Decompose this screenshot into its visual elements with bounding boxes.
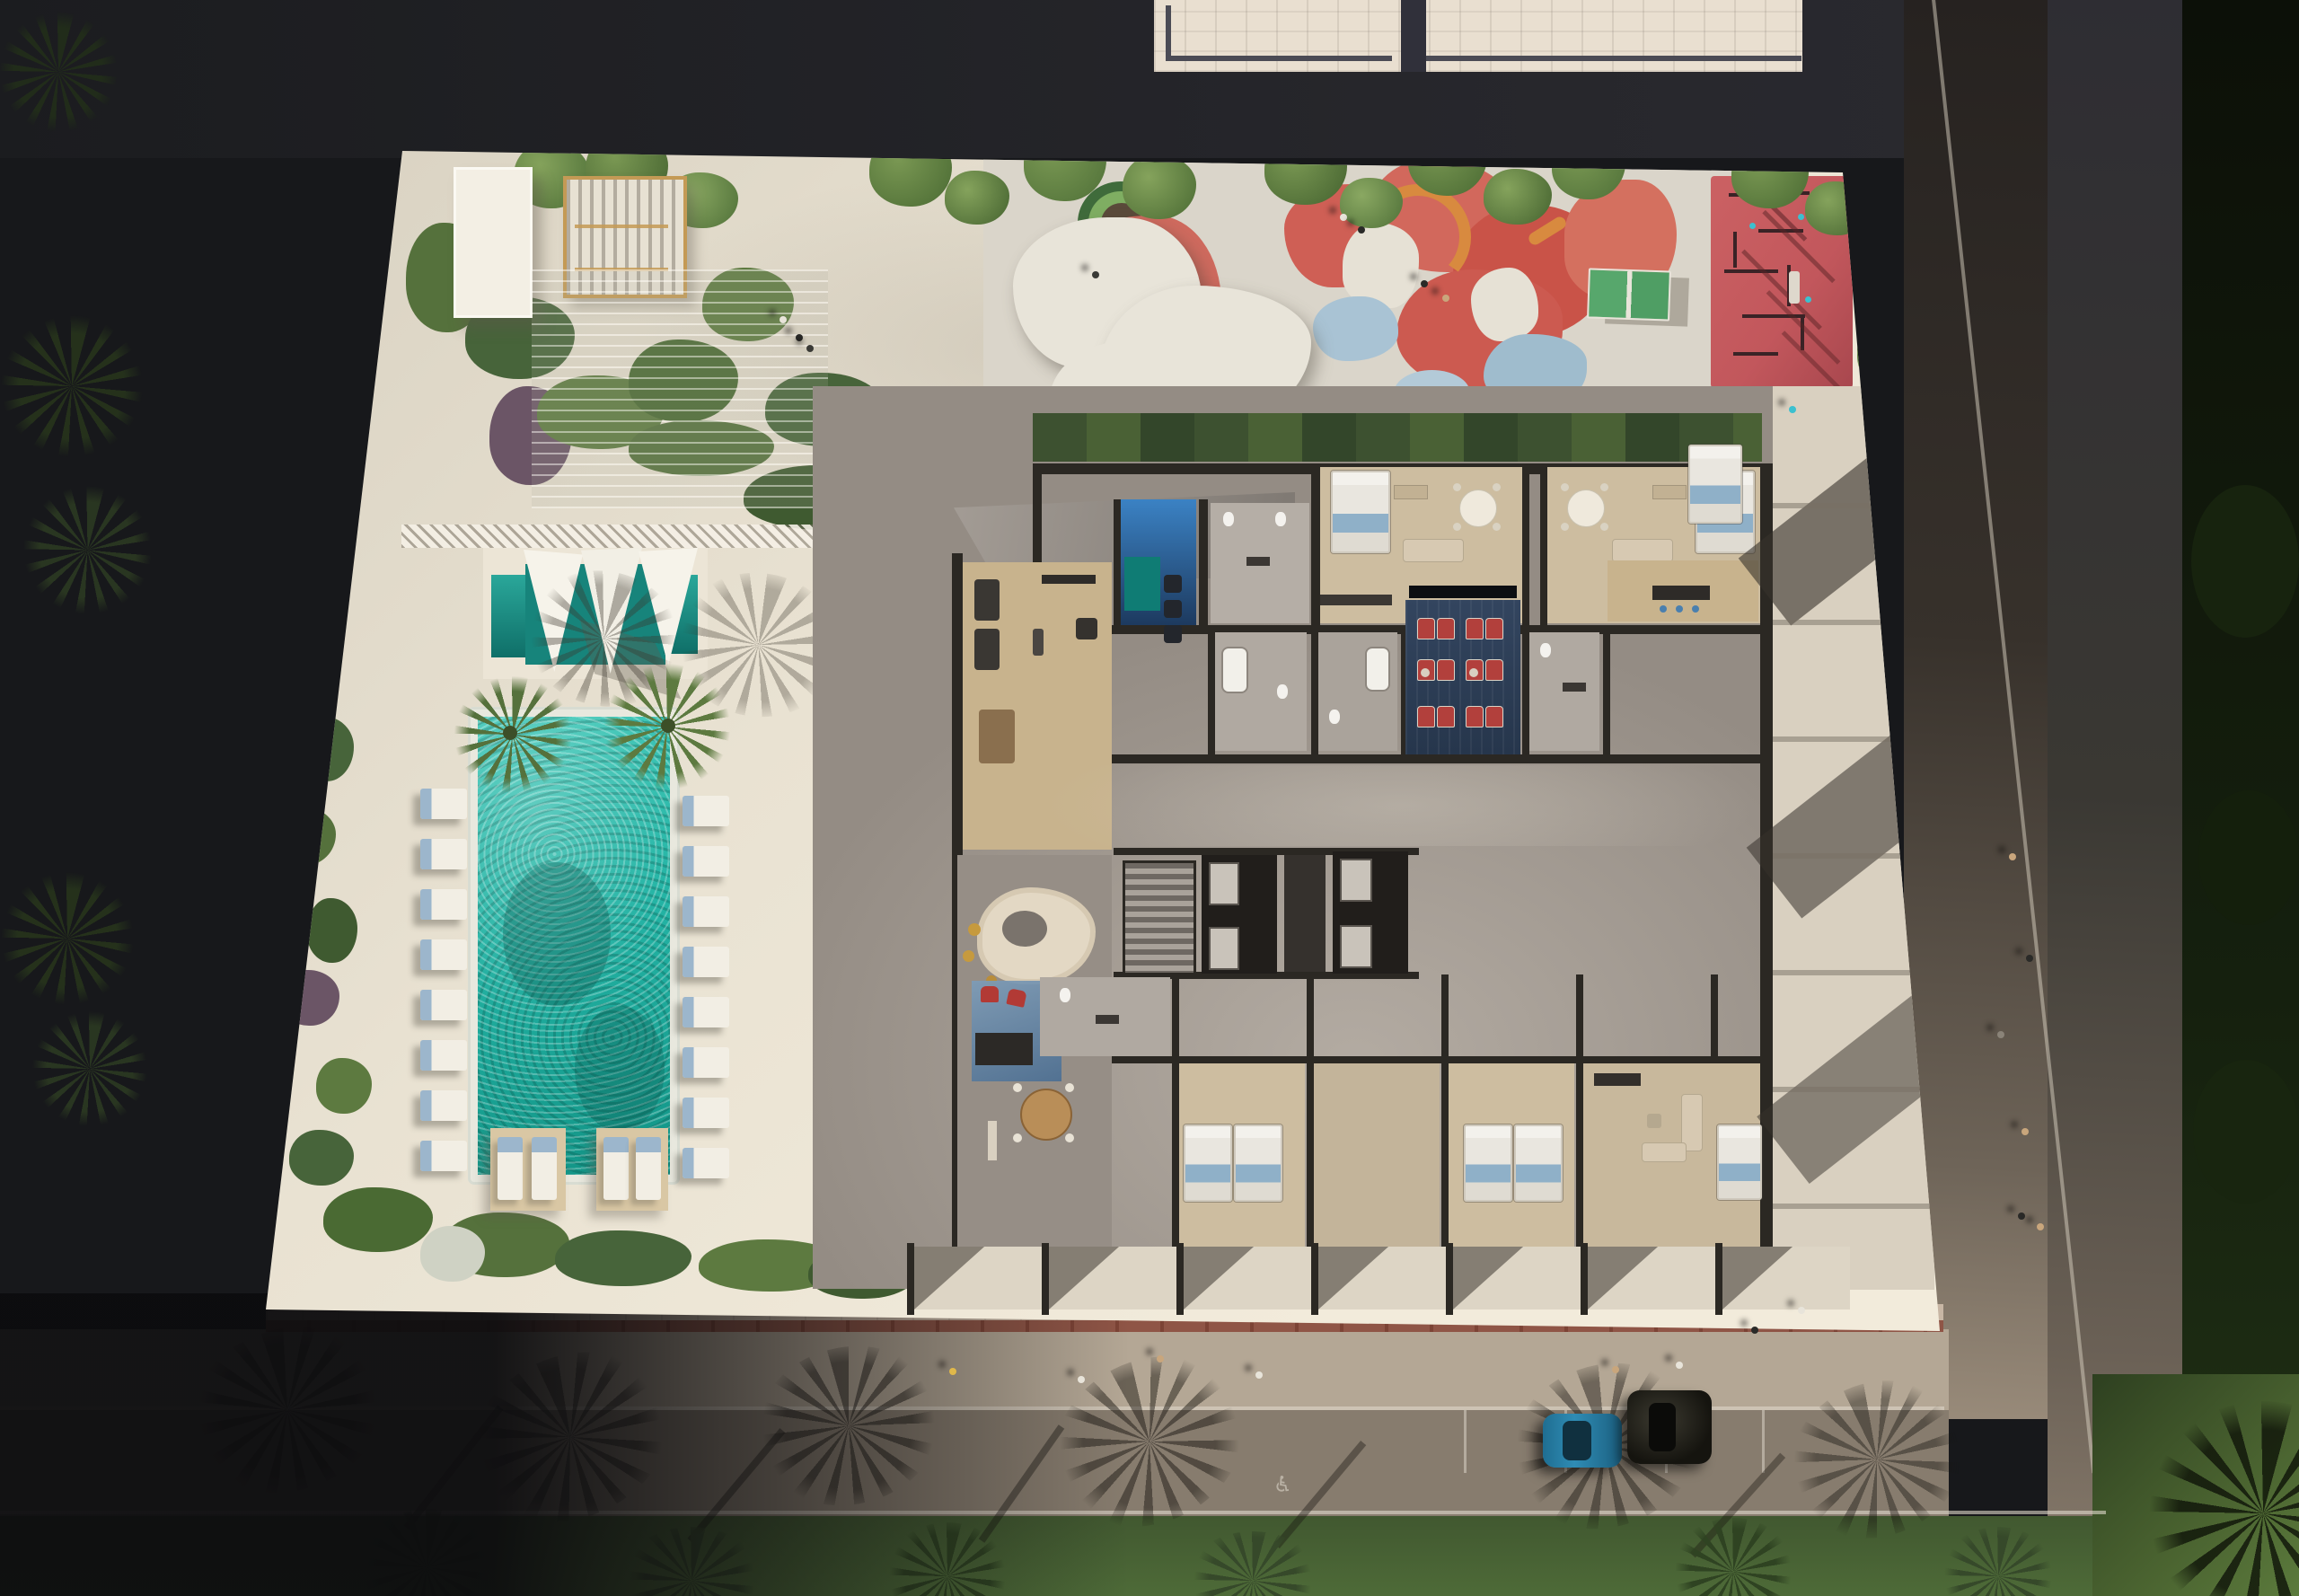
pedestrian bbox=[2022, 1128, 2029, 1135]
pedestrian bbox=[1421, 280, 1428, 287]
pedestrian bbox=[1358, 226, 1365, 234]
pedestrian bbox=[2037, 1223, 2044, 1230]
pedestrian bbox=[1255, 1371, 1263, 1379]
pedestrian bbox=[806, 345, 814, 352]
pedestrian bbox=[796, 334, 803, 341]
pedestrian bbox=[1997, 1031, 2004, 1038]
pedestrian bbox=[1092, 271, 1099, 278]
pedestrian bbox=[1676, 1362, 1683, 1369]
pedestrian bbox=[1751, 1327, 1758, 1334]
pedestrian bbox=[1612, 1366, 1619, 1373]
pedestrian bbox=[2026, 955, 2033, 962]
pedestrian bbox=[2018, 1212, 2025, 1220]
pedestrian bbox=[2009, 853, 2016, 860]
overlay-objects bbox=[0, 0, 2299, 1596]
pedestrian bbox=[1789, 406, 1796, 413]
pedestrian bbox=[780, 316, 787, 323]
aerial-rendering: ♿ bbox=[0, 0, 2299, 1596]
car-black-glass bbox=[1649, 1403, 1676, 1451]
pedestrian bbox=[1340, 214, 1347, 221]
pedestrian bbox=[949, 1368, 956, 1375]
pedestrian bbox=[1157, 1355, 1164, 1362]
pedestrian bbox=[1442, 295, 1449, 302]
car-blue-glass bbox=[1563, 1421, 1591, 1460]
pedestrian bbox=[1078, 1376, 1085, 1383]
pedestrian bbox=[1798, 1307, 1805, 1314]
